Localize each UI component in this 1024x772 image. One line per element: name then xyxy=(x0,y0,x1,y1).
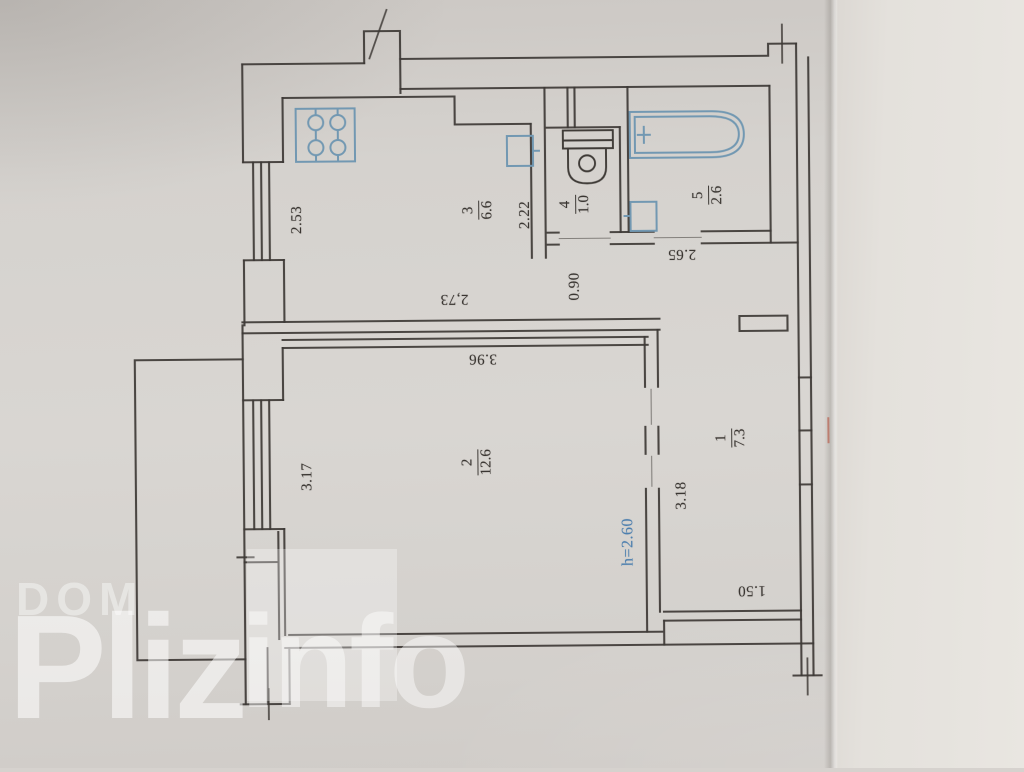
dim-kitchen-bottom: 2,73 xyxy=(440,290,468,307)
room-area: 2.6 xyxy=(709,186,726,205)
stove-icon xyxy=(296,108,355,162)
toilet-icon xyxy=(563,130,613,183)
room-area: 6.6 xyxy=(479,201,496,220)
room-area: 7.3 xyxy=(732,429,749,448)
room-label-hall: 1 7.3 xyxy=(714,429,749,448)
room-number: 5 xyxy=(691,186,709,205)
room-area: 1.0 xyxy=(576,195,593,214)
room-label-living-room: 2 12.6 xyxy=(460,449,495,476)
room-number: 3 xyxy=(461,201,479,220)
dim-ceiling-height: h=2.60 xyxy=(619,518,637,566)
dim-kitchen-left: 2.53 xyxy=(289,206,306,234)
balcony-walls xyxy=(135,359,246,660)
room-label-bathroom: 5 2.6 xyxy=(691,186,726,205)
bathtub-icon xyxy=(630,111,744,158)
wc-bathroom-walls xyxy=(546,86,797,245)
floor-plan-drawing xyxy=(0,0,1024,772)
hall-walls xyxy=(664,610,801,644)
corridor-walls xyxy=(242,316,787,336)
room-number: 1 xyxy=(714,429,732,448)
dim-hall-bottom: 1.50 xyxy=(738,581,766,598)
floor-plan: 2.53 2,73 2.22 0.90 2.65 3.96 3.17 h=2.6… xyxy=(0,0,1024,772)
dim-corridor-length: 2.65 xyxy=(668,245,696,262)
room-area: 12.6 xyxy=(478,449,495,475)
dim-kitchen-right: 2.22 xyxy=(517,201,534,229)
room-number: 4 xyxy=(558,195,576,214)
dim-corridor-width: 0.90 xyxy=(567,272,584,300)
room-label-kitchen: 3 6.6 xyxy=(461,201,496,220)
dim-hall-left: 3.18 xyxy=(673,481,690,509)
room-label-wc: 4 1.0 xyxy=(558,195,593,214)
dim-living-top: 3.96 xyxy=(469,350,497,367)
room-number: 2 xyxy=(460,449,478,475)
dim-living-left: 3.17 xyxy=(299,463,316,491)
kitchen-sink-icon xyxy=(507,136,539,166)
living-room-walls xyxy=(235,320,813,720)
